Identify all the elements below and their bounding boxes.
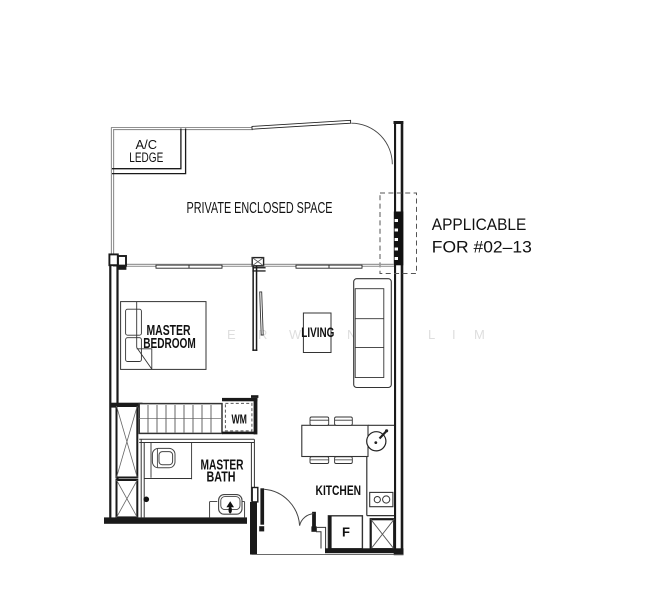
svg-text:BATH: BATH: [207, 470, 236, 486]
svg-text:APPLICABLE: APPLICABLE: [432, 216, 527, 234]
svg-text:LIVING: LIVING: [301, 325, 334, 340]
svg-text:KITCHEN: KITCHEN: [316, 483, 362, 498]
svg-text:M: M: [474, 327, 485, 342]
svg-text:FOR #02–13: FOR #02–13: [432, 239, 532, 257]
svg-text:E: E: [227, 327, 236, 342]
svg-text:BEDROOM: BEDROOM: [143, 336, 196, 352]
svg-text:L: L: [428, 327, 435, 342]
svg-text:PRIVATE ENCLOSED SPACE: PRIVATE ENCLOSED SPACE: [187, 200, 333, 217]
svg-text:I: I: [452, 327, 456, 342]
svg-text:WM: WM: [231, 411, 247, 426]
svg-text:LEDGE: LEDGE: [129, 150, 163, 165]
svg-text:W: W: [289, 327, 302, 342]
svg-text:F: F: [342, 525, 350, 540]
